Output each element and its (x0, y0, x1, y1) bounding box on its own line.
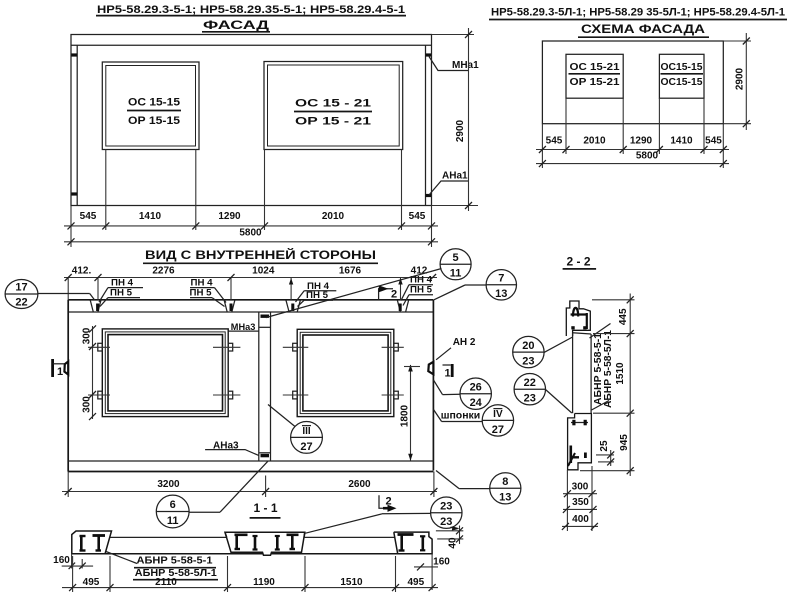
svg-text:1410: 1410 (670, 136, 693, 147)
svg-text:300: 300 (81, 396, 92, 413)
svg-text:1024: 1024 (252, 266, 275, 277)
svg-text:24: 24 (470, 397, 483, 409)
svg-text:ПН 4: ПН 4 (191, 278, 214, 288)
svg-text:545: 545 (546, 136, 563, 147)
svg-text:МНа1: МНа1 (452, 60, 479, 71)
svg-text:1: 1 (57, 366, 63, 378)
svg-text:3200: 3200 (157, 479, 180, 490)
svg-text:23: 23 (440, 516, 452, 528)
svg-text:МНа3: МНа3 (231, 322, 256, 332)
svg-text:5800: 5800 (239, 228, 262, 239)
svg-text:1410: 1410 (139, 211, 162, 222)
svg-text:23: 23 (524, 393, 536, 405)
svg-text:ОС 15-21: ОС 15-21 (570, 62, 621, 73)
svg-text:300: 300 (81, 327, 92, 344)
svg-text:АБНР 5-58-5Л-1: АБНР 5-58-5Л-1 (603, 330, 614, 408)
svg-text:ОС 15 - 21: ОС 15 - 21 (295, 98, 371, 110)
svg-text:11: 11 (450, 268, 462, 280)
svg-text:2: 2 (391, 289, 397, 301)
svg-text:ПН 5: ПН 5 (190, 287, 212, 297)
svg-text:СХЕМА ФАСАДА: СХЕМА ФАСАДА (581, 22, 705, 36)
svg-text:26: 26 (470, 381, 482, 393)
svg-text:25: 25 (599, 440, 610, 452)
svg-text:23: 23 (522, 355, 534, 367)
svg-text:АБНР 5-58-5-1: АБНР 5-58-5-1 (137, 555, 213, 566)
svg-text:160: 160 (433, 557, 450, 568)
svg-text:1510: 1510 (615, 362, 626, 385)
svg-text:2276: 2276 (152, 266, 175, 277)
svg-text:ПН 5: ПН 5 (110, 287, 132, 297)
svg-text:545: 545 (705, 136, 722, 147)
svg-text:20: 20 (522, 340, 534, 352)
svg-text:13: 13 (495, 288, 507, 300)
svg-text:1510: 1510 (340, 577, 363, 588)
svg-text:2010: 2010 (583, 136, 606, 147)
svg-text:ФАСАД: ФАСАД (203, 18, 270, 32)
svg-text:III: III (302, 426, 311, 437)
svg-text:545: 545 (80, 211, 97, 222)
svg-text:300: 300 (572, 482, 589, 493)
svg-text:2010: 2010 (322, 211, 345, 222)
svg-text:ПН 5: ПН 5 (410, 285, 432, 295)
svg-text:1800: 1800 (399, 404, 410, 427)
svg-text:ОР 15-21: ОР 15-21 (570, 77, 621, 88)
svg-text:1290: 1290 (630, 136, 653, 147)
svg-text:НР5-58.29.3-5Л-1; НР5-58.29 35: НР5-58.29.3-5Л-1; НР5-58.29 35-5Л-1; НР5… (491, 7, 785, 19)
svg-text:445: 445 (618, 308, 629, 325)
svg-text:ПН 5: ПН 5 (306, 290, 328, 300)
svg-text:ОС 15-15: ОС 15-15 (128, 97, 180, 109)
svg-text:13: 13 (499, 492, 511, 504)
svg-text:2: 2 (386, 496, 392, 508)
svg-text:40: 40 (448, 537, 459, 549)
svg-text:17: 17 (15, 282, 27, 294)
svg-text:ОС15-15: ОС15-15 (661, 62, 703, 73)
svg-text:5: 5 (453, 252, 459, 264)
svg-text:11: 11 (167, 515, 179, 527)
svg-text:IV: IV (493, 409, 503, 420)
svg-text:5800: 5800 (636, 151, 659, 162)
svg-text:1676: 1676 (339, 266, 362, 277)
svg-text:1 - 1: 1 - 1 (253, 501, 277, 515)
svg-text:7: 7 (498, 273, 504, 285)
svg-text:22: 22 (15, 297, 27, 309)
svg-text:6: 6 (170, 499, 176, 511)
svg-text:412.: 412. (72, 266, 92, 277)
svg-text:27: 27 (492, 424, 504, 436)
svg-text:495: 495 (83, 577, 100, 588)
svg-text:ОР 15-15: ОР 15-15 (128, 115, 180, 127)
svg-text:НР5-58.29.3-5-1; НР5-58.29.35-: НР5-58.29.3-5-1; НР5-58.29.35-5-1; НР5-5… (97, 4, 405, 16)
svg-text:2900: 2900 (455, 119, 466, 142)
svg-text:2110: 2110 (155, 577, 177, 588)
svg-text:23: 23 (440, 500, 452, 512)
svg-text:ОР 15 - 21: ОР 15 - 21 (295, 116, 371, 128)
svg-text:2900: 2900 (735, 67, 746, 90)
svg-text:ВИД С ВНУТРЕННЕЙ СТОРОНЫ: ВИД С ВНУТРЕННЕЙ СТОРОНЫ (145, 247, 376, 262)
svg-text:350: 350 (572, 497, 589, 508)
svg-text:400: 400 (572, 514, 589, 525)
svg-text:АНа1: АНа1 (442, 171, 468, 182)
svg-text:ПН 4: ПН 4 (111, 278, 134, 288)
svg-text:1: 1 (445, 368, 451, 380)
svg-text:АН 2: АН 2 (453, 337, 476, 348)
svg-text:8: 8 (502, 476, 508, 488)
svg-text:495: 495 (407, 577, 424, 588)
svg-text:22: 22 (524, 377, 536, 389)
svg-text:2 - 2: 2 - 2 (566, 255, 590, 269)
svg-text:945: 945 (619, 434, 630, 451)
svg-text:1290: 1290 (218, 211, 241, 222)
svg-text:1190: 1190 (253, 577, 275, 588)
svg-text:2600: 2600 (348, 479, 371, 490)
svg-text:160: 160 (53, 555, 70, 566)
svg-text:шпонки: шпонки (441, 410, 481, 422)
svg-text:ОС15-15: ОС15-15 (661, 77, 703, 88)
svg-text:27: 27 (300, 441, 312, 453)
svg-text:545: 545 (409, 211, 426, 222)
